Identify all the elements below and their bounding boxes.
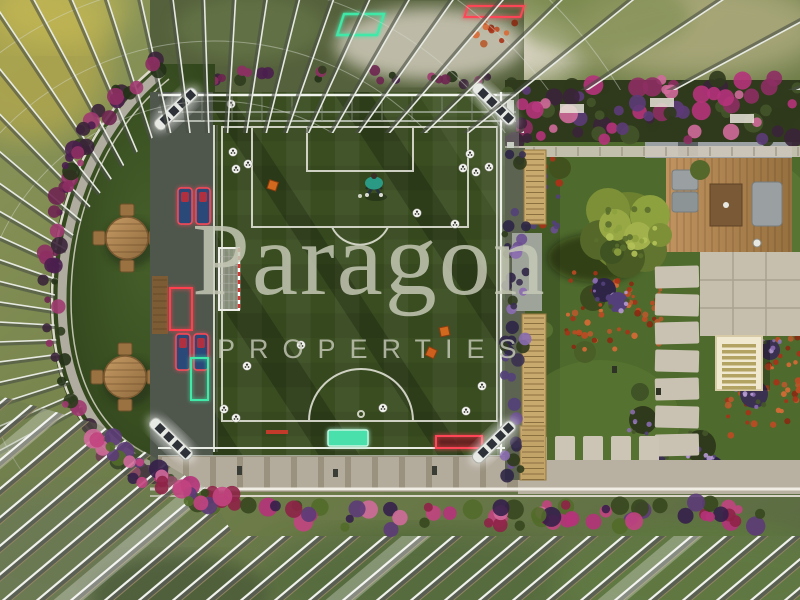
louver-slat [722,368,756,372]
flower-clump [51,278,57,284]
flower [646,422,651,427]
flower-clump [606,123,617,134]
flower-clump [599,133,610,144]
flower-clump [57,377,66,386]
red-flower [786,362,791,367]
flower-clump [136,458,144,466]
ball-patch [225,409,227,411]
flower-clump [193,496,208,511]
flower-clump [136,477,147,488]
flower-clump [46,340,53,347]
rooftop-aerial-render: Paragon PROPERTIES [0,0,800,600]
flower-clump [723,124,739,140]
ball-patch [415,213,417,215]
ball-patch [300,343,302,345]
flower-clump [157,476,168,487]
flower-clump [349,500,366,517]
planter-flower [506,272,516,282]
planter-flower [516,279,523,286]
flower-clump [76,122,90,136]
tree-leaf [631,206,637,212]
flower-clump [102,110,117,125]
flower-clump [755,509,765,519]
red-flower [593,271,597,275]
red-flower [725,402,732,409]
flower [632,430,636,434]
flower-clump [340,522,349,531]
flower-clump [734,72,752,90]
red-flower [629,281,634,286]
flower-clump [629,95,646,112]
louver-slat [722,386,756,390]
red-flower [728,397,734,403]
planter-flower [502,354,509,361]
flower [750,393,753,396]
ball-patch [469,152,471,154]
flower [555,179,563,187]
ball-patch [454,222,456,224]
tree-canopy [648,223,672,247]
planter-flower [522,268,531,277]
flower-clump [84,146,91,153]
louver-slat [722,380,756,384]
planter-edge [650,98,674,107]
neon-green-table [328,430,368,446]
wood-slat-path [520,426,546,480]
flower-clump [515,521,525,531]
tree-leaf [645,207,651,213]
flower-clump [522,133,532,143]
flower-clump [51,299,65,313]
planter-flower [519,333,532,346]
chair [120,260,134,272]
red-flower [746,410,752,416]
planter-flower [506,321,519,334]
flower [702,430,708,436]
flower-clump [37,274,48,285]
stepping-stone [655,265,700,288]
flower-clump [213,487,233,507]
flower-clump [602,505,610,513]
flower-clump [713,506,729,522]
flower-clump [237,66,247,76]
flower-clump [48,205,61,218]
red-flower [793,360,798,365]
flower [778,340,782,344]
ball-patch [235,167,237,169]
soccer-ball [485,163,494,172]
scene-canvas [0,0,800,600]
red-flower [570,316,575,321]
flower [633,419,638,424]
planter-flower [509,246,522,259]
planter-flower [503,220,515,232]
flower [593,290,596,293]
flower [645,432,649,436]
planter-flower [519,288,527,296]
chair [93,231,105,245]
planter-flower [504,243,511,250]
red-flower [612,346,617,351]
red-flower [572,330,576,334]
flower-clump [145,57,160,72]
red-flower [576,329,582,335]
flower-clump [62,162,69,169]
red-flower [728,432,735,439]
wood-slat-path [522,314,546,426]
flower-clump [683,135,692,144]
red-flower [726,414,730,418]
flower-clump [443,506,457,520]
red-flower [565,330,570,335]
chair [120,204,134,216]
tree-leaf [606,210,610,214]
flower-clump [285,501,302,518]
planter-flower [511,353,524,366]
red-flower [781,391,787,397]
planter-flower [507,335,517,345]
red-flower [659,317,664,322]
flower-clump [56,327,65,336]
planter-flower [500,469,514,483]
red-flower [631,295,634,298]
stepping-stone [655,321,700,344]
flower-clump [717,89,734,106]
tree-leaf [594,238,599,243]
flower [761,402,766,407]
tree-leaf [606,233,614,241]
red-flower [587,331,593,337]
red-flower [784,418,790,424]
red-flower [598,303,602,307]
flower-clump [424,503,433,512]
ball-patch [302,345,304,347]
flower [606,294,612,300]
bush [631,383,649,401]
ball-patch [246,164,248,166]
ball-patch [453,224,455,226]
ball-patch [235,416,237,418]
ball-patch [232,150,234,152]
ball-patch [475,170,477,172]
soccer-ball [379,404,388,413]
ball-patch [490,167,492,169]
flower-clump [788,99,797,108]
flower-clump [419,517,429,527]
flower [743,393,747,397]
flower-clump [62,401,69,408]
ball-patch [461,168,463,170]
flower [756,399,761,404]
flower-clump [270,500,281,511]
tree-leaf [639,239,644,244]
chair [118,343,132,355]
red-flower [650,301,655,306]
mow-stripe [213,363,505,388]
flower-clump [240,497,256,513]
flower-clump [130,81,144,95]
red-flower [751,420,758,427]
flower-clump [42,323,51,332]
planter-flower [505,150,514,159]
kettle [753,239,761,247]
planter-edge [505,146,800,157]
ball-patch [234,418,236,420]
red-flower [581,306,585,310]
ball-patch [468,154,470,156]
flower [511,20,518,27]
ball-patch [247,162,249,164]
flower-clump [234,74,246,86]
red-flower [600,309,603,312]
flower-clump [392,510,407,525]
tree-leaf [614,248,622,256]
red-flower [745,420,749,424]
ball-patch [234,169,236,171]
soccer-ball [459,164,468,173]
flower-clump [756,133,768,145]
stepping-stone [655,405,700,428]
flower-clump [709,71,726,88]
flower-clump [531,507,547,523]
flower [504,30,509,35]
red-flower [584,319,590,325]
ball-patch [245,366,247,368]
sprinkler [612,366,617,373]
louver-slat [722,362,756,366]
flower [593,278,598,283]
deck-lounger [672,192,698,212]
planter-flower [521,221,531,231]
paver-slab [378,457,399,489]
soccer-ball [472,168,481,177]
stepping-stone [655,349,700,372]
flower-clump [51,237,68,254]
planter-flower [500,342,509,351]
red-flower [773,379,779,385]
flower-clump [687,494,705,512]
ball-patch [481,384,483,386]
flower-clump [301,507,316,522]
flower-clump [676,106,689,119]
ball-patch [464,168,466,170]
flower-clump [218,74,226,82]
soccer-ball [297,341,306,350]
flower-clump [376,77,384,85]
planter-flower [513,156,527,170]
flower [624,291,627,294]
flower-clump [664,107,677,120]
bush [574,341,596,363]
planter-edge [560,104,584,113]
soccer-ball [220,405,229,414]
soccer-ball [232,414,241,423]
stone-patio [700,252,800,336]
ball-patch [249,164,251,166]
flower-clump [463,499,483,519]
flower-clump [561,500,570,509]
flower-clump [643,111,653,121]
ball-patch [248,366,250,368]
ball-patch [487,167,489,169]
flower [552,220,556,224]
flower-clump [536,131,546,141]
red-flower [642,312,648,318]
ball-patch [467,411,469,413]
flower-clump [71,146,84,159]
flower-clump [564,511,579,526]
chair [118,399,132,411]
wood-mat [152,276,168,334]
ball-patch [237,418,239,420]
flower-clump [526,101,544,119]
paver-slab [243,457,264,489]
soccer-ball [413,209,422,218]
ball-patch [231,152,233,154]
red-flower [592,338,597,343]
flower-clump [772,125,784,137]
soccer-ball [244,160,253,169]
red-flower [771,366,774,369]
soccer-ball [451,220,460,229]
red-flower [582,347,587,352]
ball-patch [456,224,458,226]
red-flower [607,329,612,334]
louver-shadow [762,340,770,390]
flower [772,339,775,342]
planter-edge [730,114,754,123]
lounger-cushion [179,338,187,348]
flower [754,405,758,409]
flower-clump [761,79,778,96]
ball-patch [381,408,383,410]
red-flower [788,336,794,342]
flower-clump [744,89,759,104]
flower-clump [692,101,711,120]
tree-leaf [631,251,637,257]
flower-clump [50,259,58,267]
red-flower [773,359,779,365]
red-flower [627,287,632,292]
lounger-cushion [197,338,205,348]
red-flower [779,409,783,413]
tree-leaf [638,253,643,258]
red-flower [785,387,790,392]
flower [601,282,605,286]
ball-patch [246,364,248,366]
paver-slab [270,457,291,489]
red-flower [607,337,613,343]
flower-clump [625,512,643,530]
red-flower [572,310,579,317]
flower [595,297,600,302]
tree-leaf [615,244,619,248]
red-flower [572,345,576,349]
flower-clump [90,432,105,447]
ball-patch [223,407,225,409]
flower [608,304,613,309]
louver-slat [722,374,756,378]
flower-clump [643,77,662,96]
tree-leaf [627,242,635,250]
flower-clump [746,516,765,535]
ball-patch [483,386,485,388]
tableware [723,202,729,208]
ball-patch [480,386,482,388]
flower-clump [123,455,136,468]
sprinkler [656,388,661,395]
flower-clump [735,90,744,99]
flower-clump [549,124,558,133]
flower-clump [730,515,742,527]
stepping-stone [655,377,700,400]
ball-patch [384,408,386,410]
flower-clump [572,127,583,138]
flower-clump [318,66,327,75]
stepping-stone [655,433,700,456]
ball-patch [464,411,466,413]
flower-clump [587,98,596,107]
ball-patch [382,406,384,408]
flower-hedge-top [500,71,800,152]
tree-leaf [622,236,628,242]
flower-clump [705,512,715,522]
flower-clump [51,353,60,362]
flower-clump [586,514,602,530]
flower-clump [172,479,191,498]
side-goal [219,248,239,310]
flower-clump [256,67,268,79]
soccer-ball [478,382,487,391]
flower [556,194,561,199]
ball-patch [418,213,420,215]
flower [630,410,635,415]
planter-flower [502,231,508,237]
flower [624,302,628,306]
planter-flower [500,450,510,460]
louver-slat [722,350,756,354]
soccer-ball [466,150,475,159]
tree-leaf [652,241,657,246]
flower-clump [484,518,493,527]
ball-patch [237,169,239,171]
soccer-ball [229,148,238,157]
flower-clump [493,499,510,516]
planter-flower [517,465,525,473]
flower-clump [346,515,354,523]
flower-clump [105,442,115,452]
ball-patch [477,172,479,174]
planter-flower [510,303,517,310]
deck-sofa [752,182,782,226]
soccer-ball [243,362,252,371]
flower-clump [44,296,50,302]
red-flower [599,312,605,318]
flower-clump [107,88,124,105]
ball-patch [234,152,236,154]
flower-clump [595,110,605,120]
red-flower [581,332,588,339]
red-flower [647,321,654,328]
flower [480,40,488,48]
flower-clump [616,122,629,135]
paver-slab [297,457,318,489]
planter-flower [507,373,516,382]
louver-slat [722,344,756,348]
flower [627,428,631,432]
ball-patch [474,172,476,174]
flower-clump [59,353,72,366]
